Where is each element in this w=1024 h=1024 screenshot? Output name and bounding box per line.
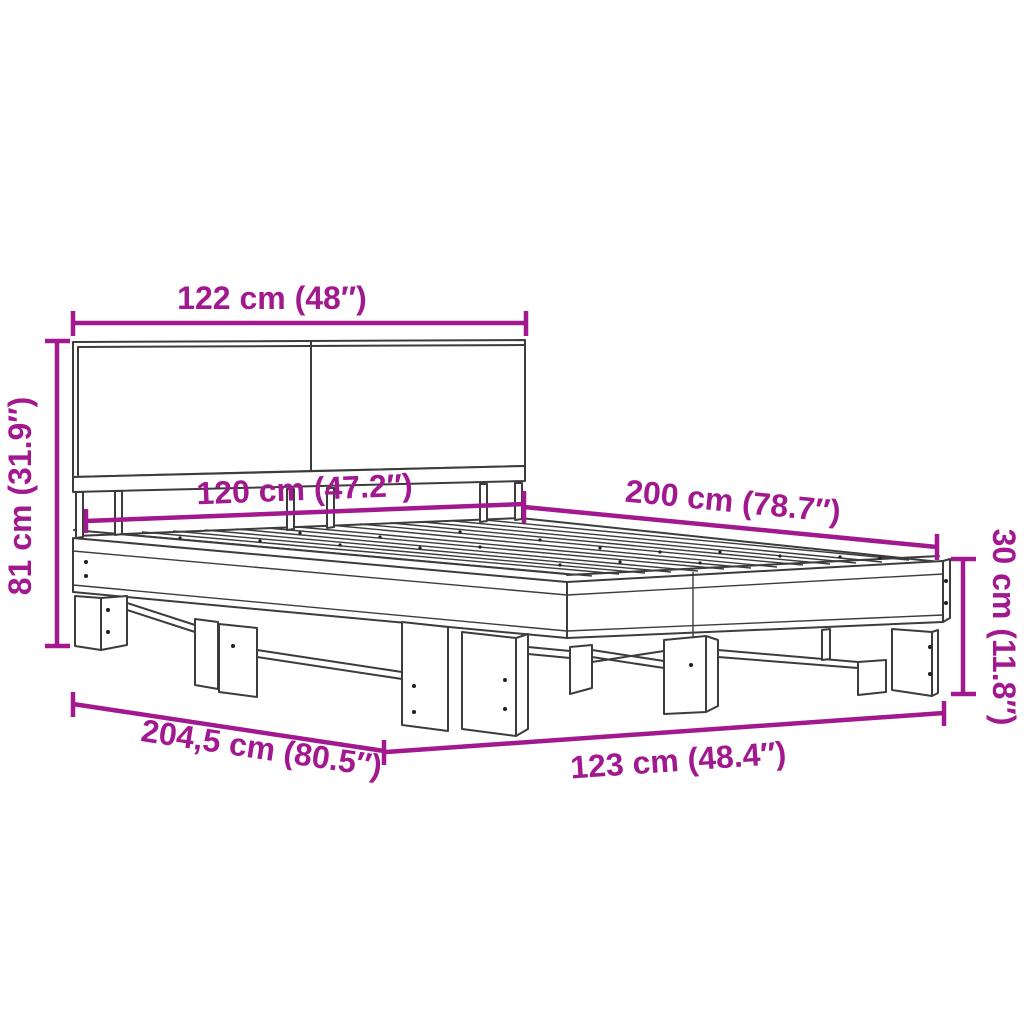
leg-foot-right <box>892 629 938 696</box>
screw-dot <box>944 579 948 583</box>
slat-dot <box>718 550 721 553</box>
total-length-label: 204,5 cm (80.5″) <box>139 712 385 784</box>
rear-foot <box>858 660 886 695</box>
slat-dot <box>298 531 301 534</box>
slat-dot <box>478 545 481 548</box>
slat-dot <box>658 550 661 553</box>
screw-dot <box>106 630 110 634</box>
headboard-panel <box>73 340 525 477</box>
screw-dot <box>412 684 416 688</box>
slat-dot <box>538 538 541 541</box>
screw-dot <box>106 608 110 612</box>
slat-dot <box>838 555 841 558</box>
slat-dot <box>178 536 181 539</box>
screw-dot <box>231 644 235 648</box>
headboard-height-dimension-line <box>45 341 70 646</box>
leg-middle-pair <box>402 622 528 736</box>
slat-dot <box>598 546 601 549</box>
total-width-label: 123 cm (48.4″) <box>569 735 787 786</box>
frame-height-dimension-line <box>951 559 976 694</box>
slat-dot <box>458 530 461 533</box>
slat-dot <box>378 535 381 538</box>
slat-dot <box>778 554 781 557</box>
product-diagram-canvas: 122 cm (48″) 81 cm (31.9″) 120 cm (47.2″… <box>0 0 1024 1024</box>
dim-frame-height: 30 cm (11.8″) <box>951 529 1022 726</box>
leg-front-corner <box>570 645 592 694</box>
screw-dot <box>412 710 416 714</box>
slat-dot <box>258 539 261 542</box>
screw-dot <box>689 663 693 667</box>
headboard-post-left <box>76 491 122 538</box>
bed-frame-diagram: 122 cm (48″) 81 cm (31.9″) 120 cm (47.2″… <box>0 0 1024 1024</box>
slat-dot <box>558 563 561 566</box>
dim-headboard-width: 122 cm (48″) <box>73 280 526 336</box>
headboard <box>73 340 525 492</box>
dim-total-length: 204,5 cm (80.5″) <box>73 692 384 784</box>
headboard-width-label: 122 cm (48″) <box>177 280 367 316</box>
slat-dot <box>418 546 421 549</box>
screw-dot <box>928 672 932 676</box>
leg-side-pair <box>195 619 257 697</box>
corner-edge-strip <box>943 559 950 622</box>
bed-frame-drawing <box>73 340 950 736</box>
slat-dot <box>338 543 341 546</box>
rear-post <box>822 629 830 660</box>
dim-headboard-height: 81 cm (31.9″) <box>2 341 70 646</box>
slat-dot <box>618 560 621 563</box>
inner-width-label: 120 cm (47.2″) <box>196 467 414 512</box>
slat-dot <box>698 561 701 564</box>
leg-foot-middle <box>664 636 718 714</box>
screw-dot <box>84 560 88 564</box>
screw-dot <box>84 574 88 578</box>
screw-dot <box>503 678 507 682</box>
slat-dot <box>878 556 881 559</box>
screw-dot <box>928 645 932 649</box>
screw-dot <box>944 601 948 605</box>
screw-dot <box>503 707 507 711</box>
frame-height-label: 30 cm (11.8″) <box>986 529 1022 726</box>
leg-head <box>75 596 127 650</box>
headboard-height-label: 81 cm (31.9″) <box>2 397 38 596</box>
